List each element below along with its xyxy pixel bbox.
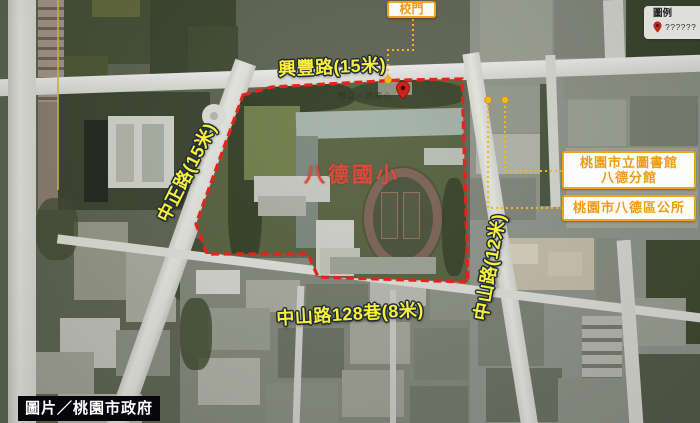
campus-building: [258, 196, 306, 216]
callout-district-office: 桃園市八德區公所: [562, 195, 696, 221]
basemap-school-label: 市立八德國小: [338, 91, 392, 102]
court: [381, 192, 398, 239]
bg-building: [116, 124, 134, 182]
bg-building: [568, 100, 626, 146]
bg-field: [188, 26, 238, 76]
school-area-label: 八德國小: [304, 159, 400, 189]
campus-building: [330, 257, 436, 274]
bg-building: [266, 383, 338, 423]
campus-building: [424, 148, 466, 165]
bg-building: [208, 308, 270, 350]
bg-building: [198, 358, 260, 405]
road-label-xingfeng: 興豐路(15米): [277, 51, 386, 82]
map-pin-icon: [653, 21, 662, 33]
bg-field: [92, 0, 140, 17]
bg-road: [603, 0, 625, 60]
bg-building: [196, 270, 240, 294]
bg-building: [278, 328, 344, 378]
bg-trees: [36, 198, 78, 260]
bg-building: [350, 322, 410, 364]
campus-building: [296, 108, 465, 139]
road-edge-line: [57, 0, 59, 190]
bg-building: [480, 0, 552, 62]
roundabout-center: [210, 112, 218, 120]
bg-building: [74, 222, 128, 300]
legend-item-label: ??????: [665, 22, 696, 32]
bg-building: [558, 378, 630, 423]
bg-building: [410, 386, 468, 423]
bg-building: [634, 354, 700, 423]
bg-building: [414, 328, 468, 380]
bg-trees: [180, 298, 212, 370]
legend-panel: 圖例 ??????: [644, 6, 700, 39]
callout-school-gate: 校門: [387, 1, 436, 18]
image-credit: 圖片／桃園市政府: [18, 396, 160, 421]
bg-shadow: [84, 120, 108, 202]
map-figure: 市立八德國小 興豐路(15米) 中正路(15米) 中山路(12米) 中山路128…: [0, 0, 700, 423]
campus-lawn: [244, 106, 300, 180]
bg-building: [630, 96, 698, 146]
campus-trees: [442, 178, 466, 276]
legend-title: 圖例: [653, 9, 698, 19]
bg-building: [142, 124, 164, 182]
court: [403, 192, 420, 239]
bg-construction-site: [548, 252, 582, 276]
bg-building: [26, 352, 94, 394]
legend-item: ??????: [653, 21, 698, 33]
road-left-surface: [8, 0, 36, 423]
callout-library: 桃園市立圖書館八德分館: [562, 151, 696, 189]
